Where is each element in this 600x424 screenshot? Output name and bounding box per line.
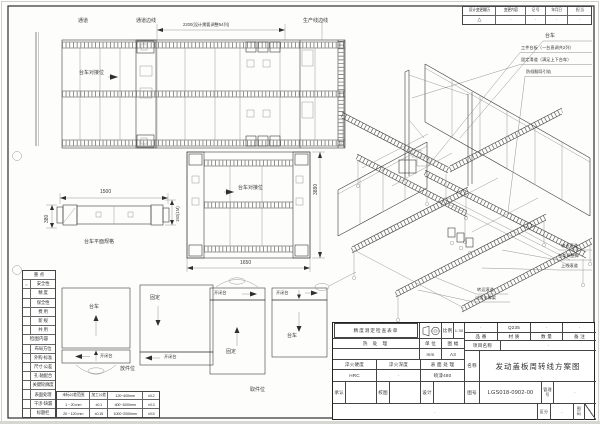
callout-foot: 台架调整脚: [558, 254, 579, 259]
quench-hardness-label: 淬火硬度: [333, 360, 377, 370]
label-passage-edge: 通道边线: [136, 19, 156, 25]
revision-table: 设计变更履历 变更内容 记 号 年月日 担 当 △ · · · ·: [462, 6, 592, 25]
checklist-mark: [23, 345, 31, 353]
detail-caption: 台车平面规格: [84, 240, 114, 246]
page-code-label-text: 图码: [574, 406, 584, 417]
callout-support: 过渡支撑架: [475, 296, 496, 301]
revision-value: ·: [568, 16, 591, 24]
callout-online: 上线滚道: [561, 264, 578, 269]
checklist-mark: [23, 326, 31, 334]
checklist-item: 费 用: [31, 309, 55, 315]
approve-label-text: 承认: [333, 389, 345, 396]
tolerance-cell: 400~1000mm: [108, 400, 143, 408]
revision-header: 记 号: [526, 7, 546, 15]
checklist-mark: [23, 289, 31, 297]
dimension-380-text: 380: [45, 215, 51, 223]
tolerance-cell: ±0.15: [90, 409, 108, 417]
management-no-value: ·: [554, 382, 596, 404]
checklist-mark: [23, 363, 31, 371]
part-no-value: ·: [465, 323, 498, 333]
tolerance-cell: 120~400mm: [108, 392, 143, 400]
checklist-row: 尺寸·公差: [23, 363, 55, 372]
checklist-mark: [23, 354, 31, 362]
revision-value: △: [463, 16, 496, 24]
unit-label: 单 位: [420, 339, 442, 349]
caption-pick-position: 取件位: [250, 388, 265, 394]
revision-header: 设计变更履历: [463, 7, 496, 15]
project-name-label: 项目名称: [465, 341, 501, 351]
revision-value: ·: [546, 16, 569, 24]
quench-depth-value: ·: [377, 370, 421, 382]
checklist-mark: [23, 409, 31, 417]
tolerance-cell: ±0.3: [143, 400, 159, 408]
title-block-footer: ·: [333, 404, 538, 420]
schematic-box1-label: 台车: [89, 305, 99, 311]
drawing-no-value: LGS018-0902-00: [480, 382, 542, 404]
schematic-box4-label: 台车: [287, 334, 297, 340]
iso-view: [338, 64, 592, 322]
callout-platform: 工件台板（一台直调共2列）: [521, 46, 574, 51]
top-plan-view: [36, 18, 345, 148]
quench-depth-label: 淬火深度: [377, 360, 421, 370]
binding-hole-icon: [13, 266, 22, 275]
revision-value: ·: [526, 16, 546, 24]
checklist-row: 标题栏: [23, 409, 55, 417]
checklist-mark: [23, 400, 31, 408]
checklist-item: 保全性: [31, 300, 55, 306]
checklist-item: 关键轮廓度: [31, 382, 55, 388]
review-label-text: 校图: [377, 389, 389, 396]
dock-position-label: 台车对接位: [238, 186, 263, 192]
revision-value-row: △ · · · ·: [463, 16, 591, 24]
tolerance-cell: 1 ~ 20 mm: [57, 400, 90, 408]
surface-treatment-value: 喷漆480: [421, 370, 465, 382]
remark-value: ·: [563, 323, 596, 333]
callout-transfer: 转运滚道: [477, 288, 494, 293]
revision-header: 变更内容: [496, 7, 526, 15]
drawing-no-label-text: 图号: [466, 389, 478, 396]
check-sheet-header: 精度测定检查表单: [334, 323, 418, 338]
design-signature: [434, 382, 465, 404]
checklist-row: 精 度: [23, 289, 55, 298]
tolerance-cell: 加工公差: [90, 392, 108, 400]
checklist-mark: [23, 372, 31, 380]
drawing-title: 发动盖板周转线方案图: [480, 351, 596, 382]
tolerance-row: 20 ~ 120 mm ±0.15 1000~2000mm ±0.5: [57, 409, 159, 417]
material-label: 材 质: [498, 333, 531, 341]
dimension-3880-text: 3880: [314, 184, 320, 195]
checklist-mark: [23, 299, 31, 307]
management-no-label-text: 管理号: [542, 387, 553, 398]
remark-label: 备 注: [563, 333, 596, 341]
checklist-row: 干涉·缺漏: [23, 400, 55, 409]
checklist-row: 费 用: [23, 308, 55, 317]
drawing-sheet: 通道 通道边线 2200(设计需要调整54列) 生产线边线 台车对接位 台车对接…: [0, 0, 600, 424]
checklist-row: 关键轮廓度: [23, 381, 55, 390]
review-signature: [390, 382, 421, 404]
heat-treatment-label: 热 处 理: [333, 339, 420, 349]
revision-header: 担 当: [568, 7, 591, 15]
checklist-row: 新 规: [23, 317, 55, 326]
material-value: Q235: [498, 323, 531, 333]
dimension-1500-text: 1500: [100, 190, 111, 196]
tolerance-cell: ±0.1: [90, 400, 108, 408]
label-production-edge: 生产线边线: [303, 19, 328, 25]
unit-value: mm: [420, 349, 442, 360]
schematic-box2-label: 固定: [150, 296, 160, 302]
checklist-row: 布局方位: [23, 345, 55, 354]
schematic-strip4-label: 开闭台: [276, 291, 289, 296]
check-items-table: 重 点 ○ 安全性 精 度 保全性 费 用 新 规 共 用 检图内容 布局方位 …: [22, 270, 56, 418]
checklist-item: 标题栏: [31, 410, 55, 416]
checklist-mark: [23, 390, 31, 398]
dimension-1650-text: 1650: [240, 261, 251, 267]
checklist-row: 表面处理: [23, 390, 55, 399]
quantity-label: 数 量: [531, 333, 563, 341]
drawing-name-label-text: 名称: [466, 362, 478, 369]
callout-trolley: 台车: [545, 34, 555, 40]
quench-hardness-value: HRC: [333, 370, 377, 382]
checklist-item: 外购·标准: [31, 355, 55, 361]
tolerance-cell: ±0.5: [143, 409, 159, 417]
checklist-item: 表面处理: [31, 392, 55, 398]
checklist-item: 安全性: [31, 281, 55, 287]
checklist-item: 干涉·缺漏: [31, 401, 55, 407]
dock-position-label: 台车对接位: [79, 71, 104, 77]
checklist-row: 外购·标准: [23, 354, 55, 363]
scale-label: 比例: [442, 323, 454, 339]
design-label-text: 设计: [421, 389, 433, 396]
checklist-item: 精 度: [31, 290, 55, 296]
heat-treatment-value: [333, 349, 420, 360]
checklist-item: 新 规: [31, 318, 55, 324]
tolerance-cell: ±0.2: [143, 392, 159, 400]
checklist-row: 孔·轴配合: [23, 372, 55, 381]
checklist-mark: [23, 317, 31, 325]
check-sheet-header-cell: 精度测定检查表单: [333, 323, 420, 339]
checklist-item: 共 用: [31, 327, 55, 333]
review-label: 校图: [377, 382, 390, 404]
part-no-label: 品 番: [465, 333, 498, 341]
tolerance-row: 1 ~ 20 mm ±0.1 400~1000mm ±0.3: [57, 400, 159, 409]
checklist-mark: [23, 308, 31, 316]
checklist-item: 布局方位: [31, 346, 55, 352]
projection-symbol-icon: [421, 325, 441, 337]
management-no-label: 管理号: [542, 382, 554, 404]
callout-guide: 防倾翻导引轨: [526, 70, 551, 75]
trolley-detail-view: [46, 193, 176, 228]
checklist-mark: [23, 381, 31, 389]
surface-treatment-label: 表 面 处 理: [421, 360, 465, 370]
tolerance-cell: 1000~2000mm: [108, 409, 143, 417]
revision-header: 年月日: [546, 7, 569, 15]
checklist-item: 孔·轴配合: [31, 373, 55, 379]
checklist-row: ○ 安全性: [23, 280, 55, 289]
approve-label: 承认: [333, 382, 346, 404]
sheet-size-value: A3: [442, 349, 465, 360]
dimension-150-text: 150(1M): [176, 206, 181, 222]
tolerance-cell: 未标公差范围: [57, 392, 90, 400]
schematic-box3-label: 固定: [226, 350, 236, 356]
tolerance-table: 未标公差范围 加工公差 120~400mm ±0.2 1 ~ 20 mm ±0.…: [56, 391, 160, 419]
callout-slide: 固定滑道（满足上下台车）: [521, 58, 571, 63]
schematic-strip2-label: 开闭台: [164, 355, 177, 360]
tolerance-row: 未标公差范围 加工公差 120~400mm ±0.2: [57, 392, 159, 401]
caption-place-position: 放件位: [120, 367, 135, 373]
checklist-item: 尺寸·公差: [31, 364, 55, 370]
project-name-value: ·: [501, 341, 596, 351]
drawing-no-label: 图号: [465, 382, 480, 404]
tolerance-cell: 20 ~ 120 mm: [57, 409, 90, 417]
class-label: 区分: [538, 404, 551, 420]
mid-plan-view: [187, 152, 325, 272]
dimension-2200-text: 2200(设计需要调整54列): [183, 23, 229, 28]
drawing-name-label: 名称: [465, 351, 480, 382]
projection-symbol-cell: [420, 323, 442, 339]
title-block: 精度测定检查表单 比例 1:30 · Q235 · · 品 番 材 质 数 量 …: [332, 322, 595, 420]
checklist-row: 共 用: [23, 326, 55, 335]
dock-arrow-icon: [110, 74, 118, 80]
scale-value: 1:30: [454, 323, 465, 339]
class-value: ·: [551, 404, 574, 420]
schematic-strip3-label: 开闭台: [214, 291, 227, 296]
checklist-mark: ○: [23, 280, 31, 288]
page-code-label: 图码: [574, 404, 585, 420]
label-passage: 通道: [78, 19, 88, 25]
class-label-text: 区分: [539, 409, 549, 416]
checklist-row: 保全性: [23, 299, 55, 308]
approve-signature: [346, 382, 377, 404]
dimension-3880: [312, 152, 325, 258]
schematic-strip1-label: 开闭台: [100, 354, 113, 359]
binding-hole-icon: [13, 152, 22, 161]
checklist-section-header: 检图内容: [23, 335, 55, 344]
design-label: 设计: [421, 382, 434, 404]
callout-conveyor: 输送滚道: [561, 244, 578, 249]
quantity-value: ·: [531, 323, 563, 333]
checklist-header: 重 点: [23, 271, 55, 280]
revision-header-row: 设计变更履历 变更内容 记 号 年月日 担 当: [463, 7, 591, 16]
revision-value: ·: [496, 16, 526, 24]
sheet-size-label: 图 幅: [442, 339, 465, 349]
page-code-diagonal: [585, 404, 596, 420]
